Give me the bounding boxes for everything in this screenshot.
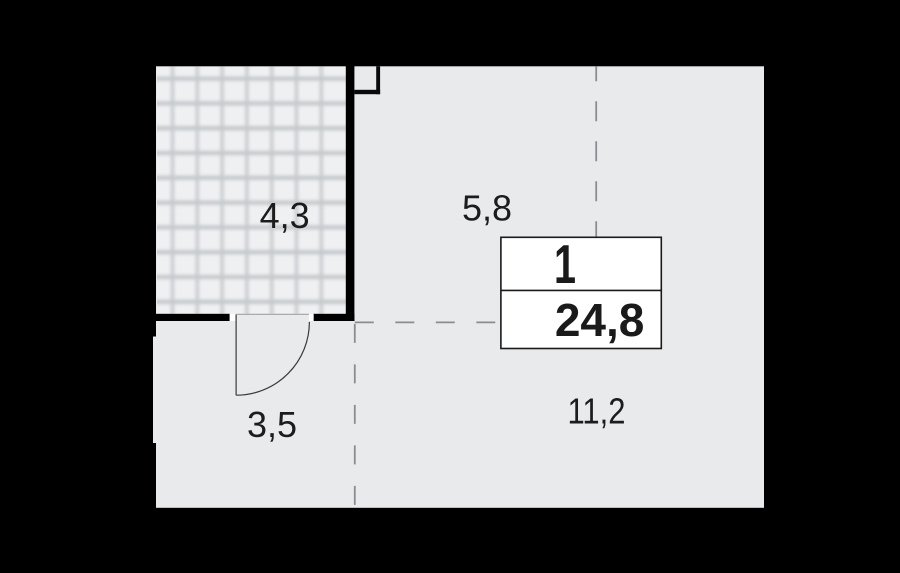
svg-text:11,2: 11,2: [568, 391, 626, 432]
svg-text:3,5: 3,5: [247, 404, 297, 445]
svg-text:24,8: 24,8: [555, 294, 645, 346]
svg-text:5,8: 5,8: [462, 188, 512, 229]
svg-text:1: 1: [554, 233, 576, 295]
svg-text:4,3: 4,3: [260, 195, 310, 236]
